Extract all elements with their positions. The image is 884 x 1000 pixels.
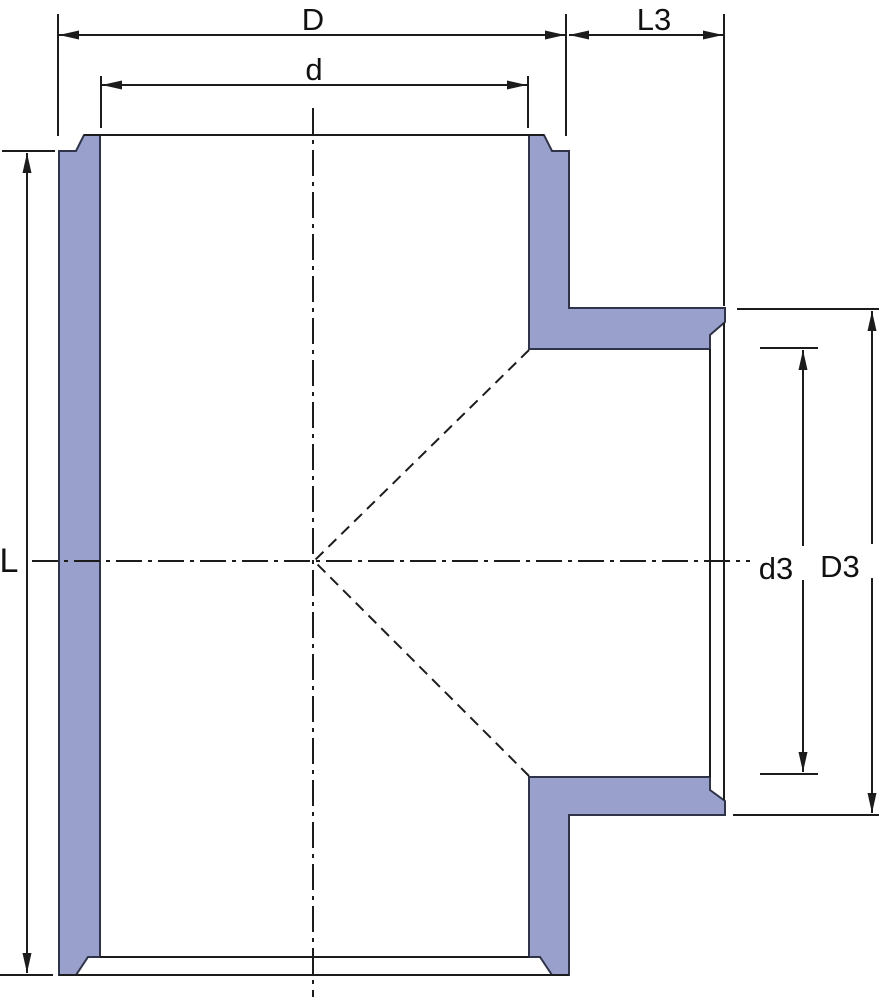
dim-L3-label: L3 bbox=[637, 2, 671, 37]
dim-D3-arrow-top bbox=[868, 311, 877, 331]
dim-d-arrow-left bbox=[102, 81, 122, 90]
dim-L-arrow-top bbox=[23, 153, 32, 173]
tee-fitting-drawing: D d L3 L bbox=[0, 0, 884, 1000]
dim-D3-label: D3 bbox=[820, 549, 860, 584]
dim-L-arrow-bottom bbox=[23, 953, 32, 973]
dim-L-label: L bbox=[0, 542, 18, 580]
dimension-D3: D3 bbox=[733, 309, 879, 815]
dimension-d: d bbox=[101, 52, 528, 128]
dim-d-arrow-right bbox=[507, 81, 527, 90]
dimension-d3: d3 bbox=[759, 348, 818, 774]
dim-D-arrow-right bbox=[545, 31, 565, 40]
dim-d-label: d bbox=[305, 52, 322, 87]
dim-d3-arrow-top bbox=[799, 350, 808, 370]
right-wall-and-branch-top-section bbox=[529, 135, 725, 349]
dimension-L: L bbox=[0, 151, 55, 975]
dim-L3-arrow-left bbox=[569, 31, 589, 40]
taper-line-lower bbox=[314, 561, 529, 776]
right-wall-and-branch-bottom-section bbox=[529, 777, 725, 975]
left-wall-section bbox=[59, 135, 100, 975]
drawing-canvas: D d L3 L bbox=[0, 0, 884, 1000]
dim-d3-label: d3 bbox=[759, 551, 793, 586]
dim-L3-arrow-right bbox=[703, 31, 723, 40]
dim-d3-arrow-bottom bbox=[799, 752, 808, 772]
taper-line-upper bbox=[314, 350, 529, 561]
dim-D-label: D bbox=[302, 2, 324, 37]
dim-D-arrow-left bbox=[59, 31, 79, 40]
dimension-L3: L3 bbox=[569, 2, 724, 306]
dim-D3-arrow-bottom bbox=[868, 793, 877, 813]
